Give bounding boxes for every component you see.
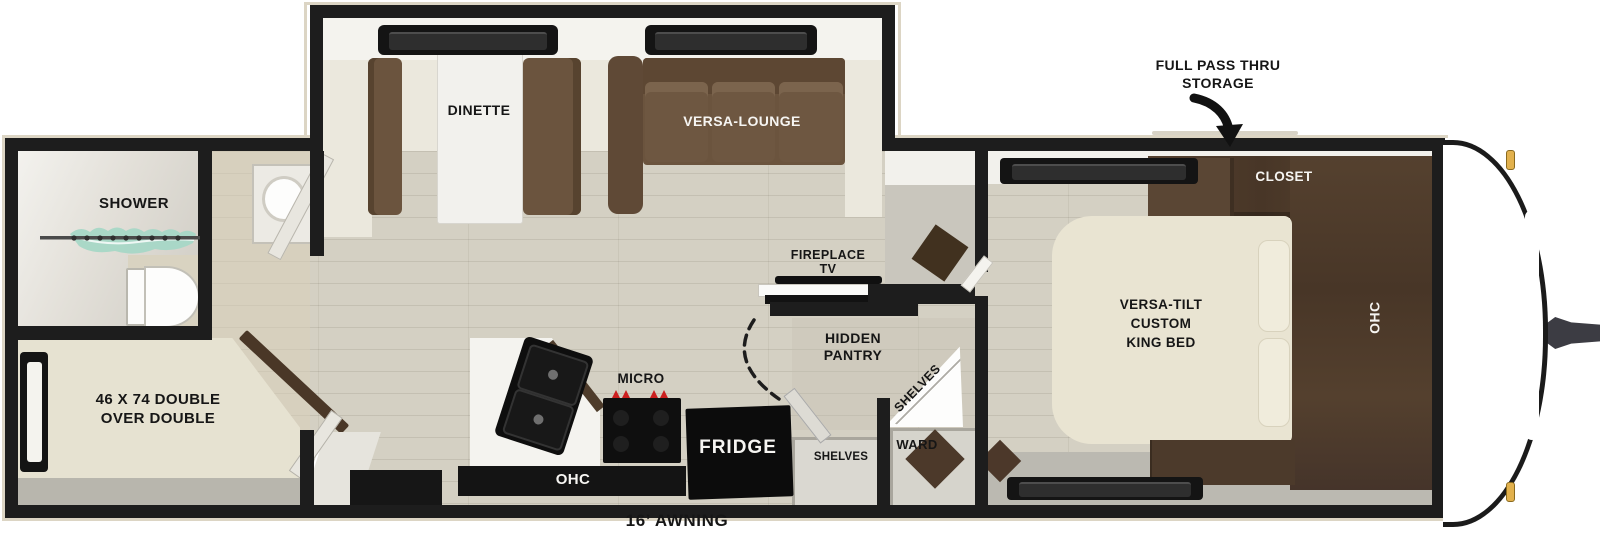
sofa-body [643, 58, 845, 165]
tv-bar [775, 276, 882, 284]
bunk-label-line1: 46 X 74 DOUBLE [63, 392, 253, 409]
shelves-closet-label: SHELVES [800, 451, 882, 464]
dinette-bench-right [523, 58, 581, 215]
king-bed-label-line3: KING BED [1081, 336, 1241, 351]
ward-label: WARD [880, 438, 954, 452]
slideout-window-right [645, 25, 817, 55]
nook-ceiling [885, 151, 975, 185]
slideout-window-left-glass [389, 32, 547, 51]
bed-pillow-top [1258, 240, 1290, 332]
burner [653, 436, 669, 452]
closet-label: CLOSET [1224, 170, 1344, 185]
versa-lounge-label: VERSA-LOUNGE [662, 114, 822, 129]
front-cap-edge-highlight [1525, 210, 1539, 440]
wall-slideout-right [882, 5, 895, 151]
trim-slideout-right [898, 2, 901, 151]
awning-label: 16’ AWNING [592, 512, 762, 531]
slideout-side-patch-right [845, 151, 882, 217]
pantry-door-swing-icon [700, 310, 800, 410]
hidden-pantry-label-line1: HIDDEN [793, 331, 913, 346]
wall-outer-top-left [5, 138, 310, 151]
micro-label: MICRO [601, 372, 681, 387]
burner [653, 410, 669, 426]
bedroom-window-bottom-glass [1019, 482, 1191, 497]
sink-drain-bottom [532, 413, 545, 426]
pass-thru-arrow-icon [1186, 92, 1256, 150]
burner [613, 436, 629, 452]
clearance-light-top [1506, 150, 1515, 170]
fireplace-label-line1: FIREPLACE [768, 249, 888, 263]
dinette-table [437, 50, 523, 224]
storage-label-line1: FULL PASS THRU [1118, 58, 1318, 73]
bedroom-ohc-label: OHC [1367, 283, 1382, 353]
sofa-armrest [608, 56, 643, 214]
bedroom-window-top [1000, 158, 1198, 184]
kitchen-ohc-label: OHC [533, 472, 613, 489]
bed-pillow-bottom [1258, 338, 1290, 427]
wall-nook-bottom [868, 284, 975, 304]
entry-step [350, 470, 442, 505]
shelves-closet [792, 437, 883, 511]
fireplace-label-line2: TV [768, 263, 888, 277]
king-bed-label-line1: VERSA-TILT [1081, 298, 1241, 313]
wall-slideout-top [310, 5, 895, 18]
bedroom-ohc-cabinet [1290, 156, 1432, 490]
range-cooktop [603, 398, 681, 463]
burner-flames-icon [606, 388, 674, 400]
slideout-window-left [378, 25, 558, 55]
bunk-window-glass [27, 362, 42, 463]
wall-bedroom-lower [975, 296, 988, 505]
burner [613, 410, 629, 426]
bedroom-window-bottom [1007, 477, 1203, 500]
trim-slideout-left [304, 2, 307, 151]
wall-shower-bunk [5, 326, 212, 340]
wall-bunk-right [300, 430, 314, 505]
hidden-pantry-label-line2: PANTRY [793, 348, 913, 363]
bedroom-window-top-glass [1012, 164, 1186, 181]
shower-label: SHOWER [74, 196, 194, 213]
fridge-label: FRIDGE [688, 438, 788, 459]
storage-label-line2: STORAGE [1118, 76, 1318, 91]
wall-outer-top-right [895, 138, 1445, 151]
clearance-light-bottom [1506, 482, 1515, 502]
slideout-window-right-glass [655, 32, 806, 51]
wall-bedroom-upper [975, 151, 988, 272]
wall-slideout-left [310, 5, 323, 151]
shower-curtain-icon [38, 222, 203, 260]
dinette-label: DINETTE [419, 103, 539, 118]
bunk-window [20, 352, 48, 472]
sink-drain-top [547, 368, 560, 381]
king-bed-label-line2: CUSTOM [1081, 317, 1241, 332]
rv-floorplan-canvas: FULL PASS THRU STORAGE DINETTE VERSA-LOU… [0, 0, 1600, 537]
wall-corridor-right [310, 151, 324, 256]
dinette-bench-left [368, 58, 402, 215]
bunk-label-line2: OVER DOUBLE [63, 411, 253, 428]
